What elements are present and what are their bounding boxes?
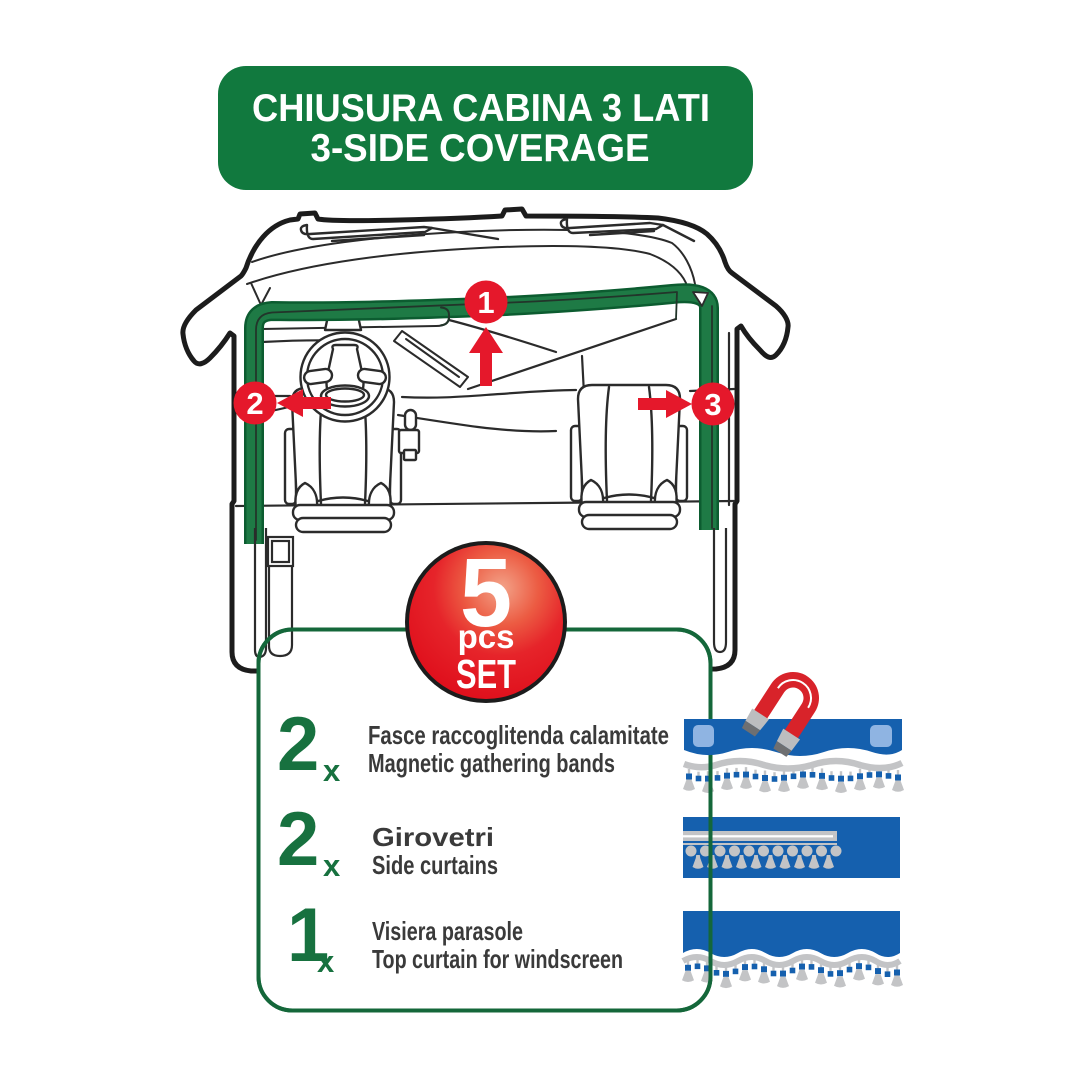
svg-text:Side curtains: Side curtains <box>372 850 498 880</box>
svg-text:Visiera parasole: Visiera parasole <box>372 916 523 946</box>
svg-text:SET: SET <box>456 651 516 697</box>
svg-text:Fasce raccoglitenda calamitate: Fasce raccoglitenda calamitate <box>368 720 669 750</box>
svg-text:Top curtain for windscreen: Top curtain for windscreen <box>372 944 623 974</box>
svg-text:3: 3 <box>704 387 721 422</box>
svg-text:Girovetri: Girovetri <box>372 822 494 852</box>
svg-text:1: 1 <box>477 285 494 320</box>
svg-text:2: 2 <box>277 702 319 787</box>
svg-text:x: x <box>317 944 335 979</box>
svg-text:CHIUSURA CABINA 3 LATI: CHIUSURA CABINA 3 LATI <box>252 87 710 130</box>
svg-text:2: 2 <box>277 797 319 882</box>
svg-text:Magnetic gathering bands: Magnetic gathering bands <box>368 748 615 778</box>
svg-text:x: x <box>323 753 341 788</box>
svg-text:x: x <box>323 848 341 883</box>
svg-text:3-SIDE COVERAGE: 3-SIDE COVERAGE <box>311 127 650 170</box>
svg-text:pcs: pcs <box>458 618 515 655</box>
svg-text:2: 2 <box>246 386 263 421</box>
